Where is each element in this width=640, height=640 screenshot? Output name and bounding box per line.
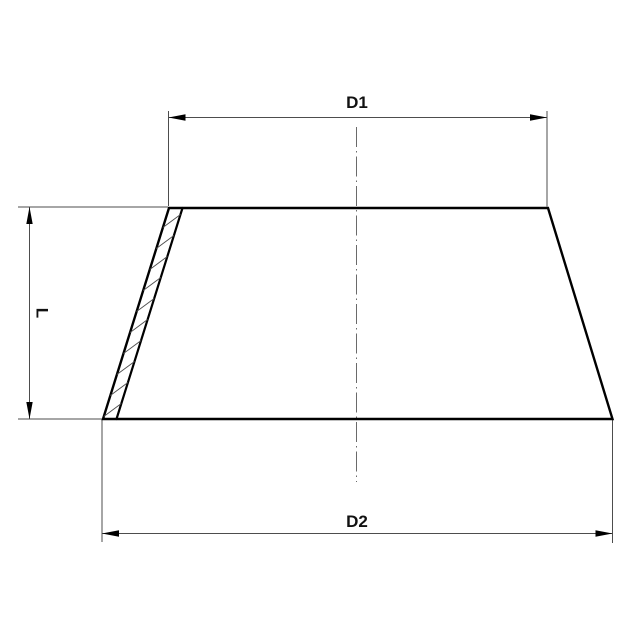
l-arrow-down-icon: [26, 402, 32, 419]
d2-dimension-label: D2: [346, 512, 368, 531]
d1-arrow-right-icon: [530, 114, 547, 120]
cone-body-outline: [103, 208, 613, 419]
technical-drawing-page: D1 D2 L: [0, 0, 640, 640]
d2-arrow-left-icon: [102, 530, 119, 536]
d1-dimension-label: D1: [346, 93, 368, 112]
d2-arrow-right-icon: [596, 530, 613, 536]
technical-drawing-canvas: D1 D2 L: [0, 0, 640, 640]
dimension-arrowheads-group: [26, 114, 612, 536]
section-hatching-group: [104, 215, 181, 417]
d1-arrow-left-icon: [169, 114, 186, 120]
dimension-lines-group: [18, 111, 613, 543]
l-arrow-up-icon: [26, 207, 32, 224]
cone-outline-group: [103, 208, 613, 419]
cone-wall-inner-edge: [117, 208, 183, 419]
l-dimension-label: L: [33, 308, 52, 318]
